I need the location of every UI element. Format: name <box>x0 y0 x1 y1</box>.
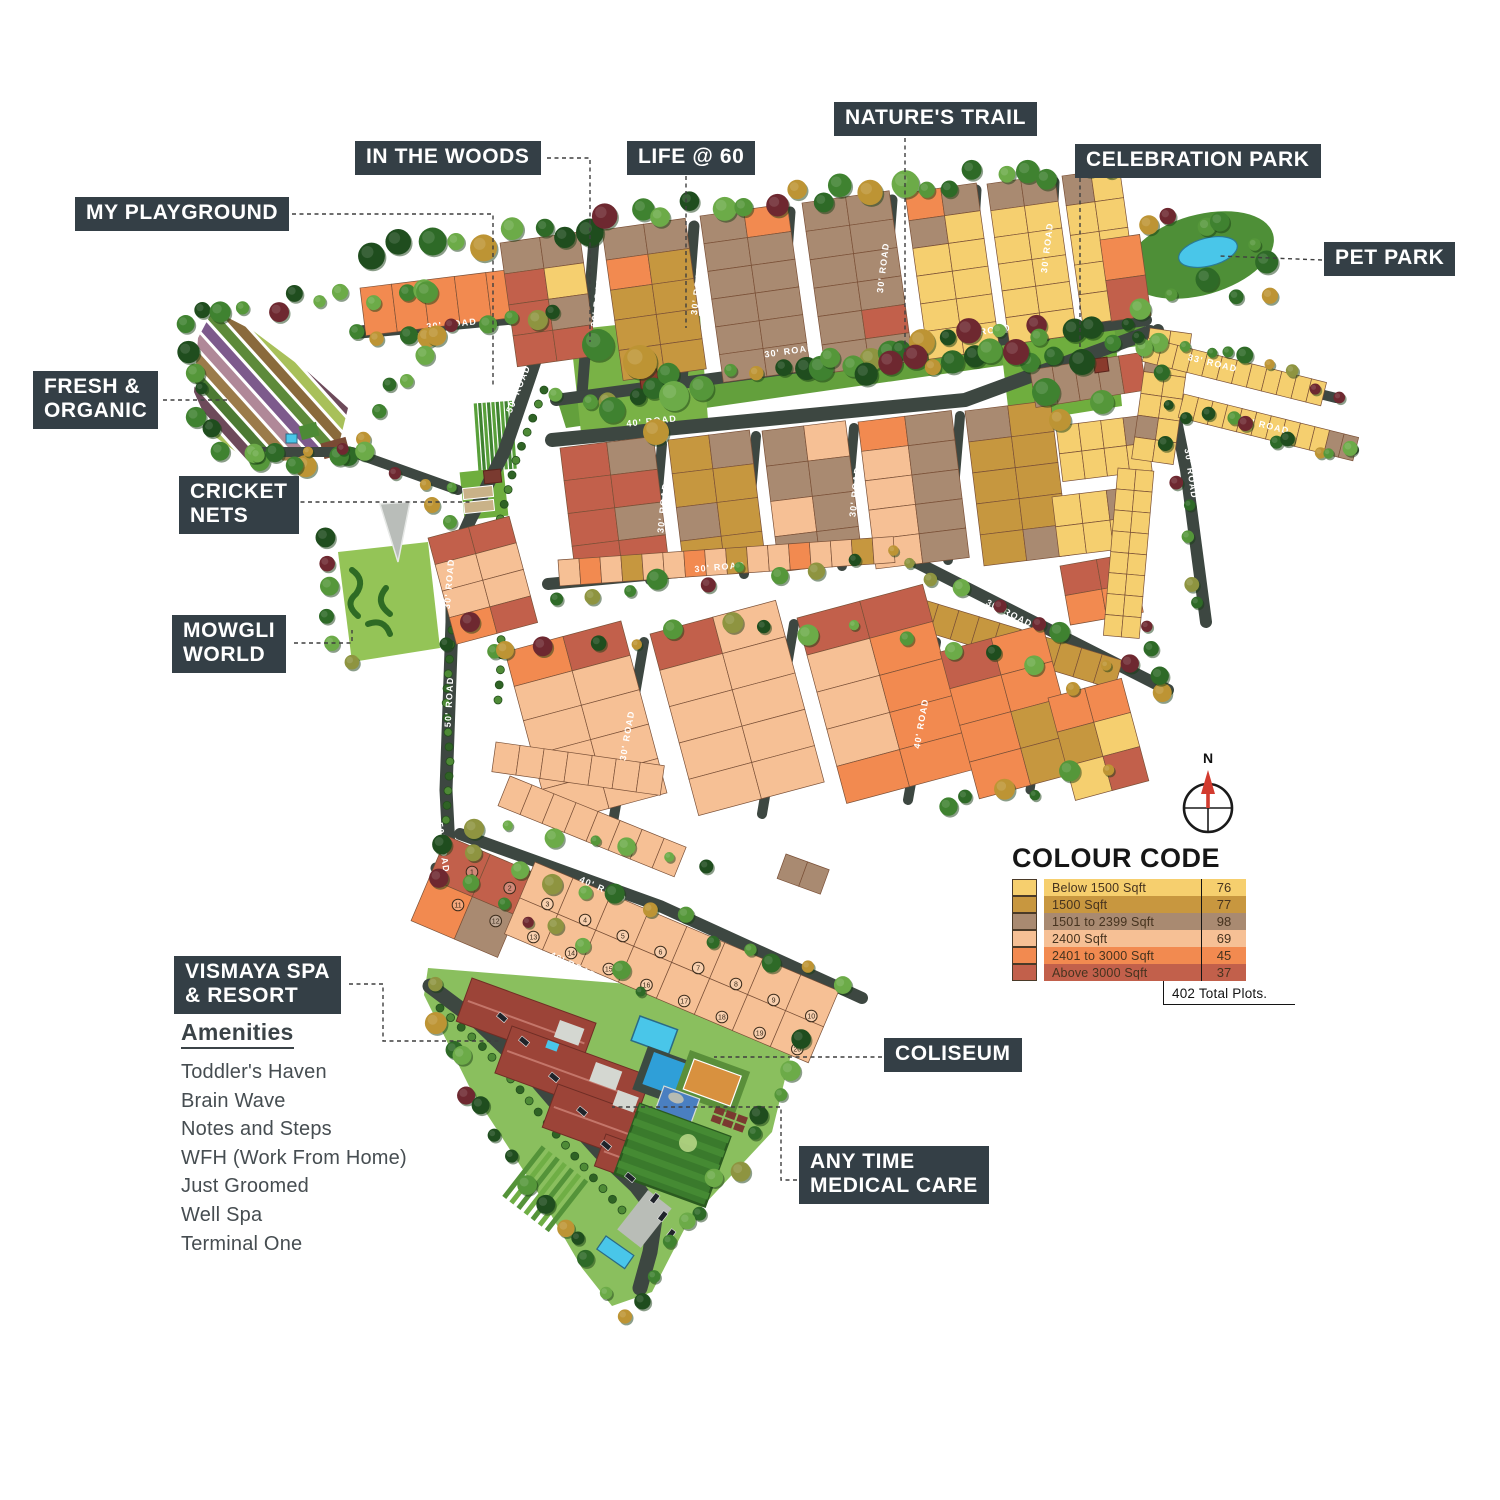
legend-row-count: 98 <box>1201 913 1246 930</box>
label-cricket-nets: CRICKET NETS <box>179 476 299 534</box>
legend-row-count: 45 <box>1201 947 1246 964</box>
svg-text:13: 13 <box>530 935 538 942</box>
legend-row: Above 3000 Sqft37 <box>1044 964 1246 981</box>
colour-code-legend: COLOUR CODE Below 1500 Sqft76 1500 Sqft7… <box>1012 843 1246 1005</box>
legend-title: COLOUR CODE <box>1012 843 1246 874</box>
legend-row-count: 69 <box>1201 930 1246 947</box>
legend-rows: Below 1500 Sqft76 1500 Sqft77 1501 to 23… <box>1044 879 1246 981</box>
legend-row-label: 1500 Sqft <box>1044 896 1201 913</box>
svg-text:5: 5 <box>621 934 625 941</box>
label-pet-park: PET PARK <box>1324 242 1455 276</box>
label-celebration-park: CELEBRATION PARK <box>1075 144 1321 178</box>
amenity-item: WFH (Work From Home) <box>181 1147 407 1171</box>
legend-row: 2400 Sqft69 <box>1044 930 1246 947</box>
svg-text:7: 7 <box>696 966 700 973</box>
legend-row-label: 2400 Sqft <box>1044 930 1201 947</box>
amenity-item: Well Spa <box>181 1204 407 1228</box>
amenities-list: Amenities Toddler's Haven Brain Wave Not… <box>181 1019 407 1261</box>
legend-swatch <box>1012 930 1037 947</box>
svg-text:6: 6 <box>659 950 663 957</box>
label-life-at-60: LIFE @ 60 <box>627 141 755 175</box>
legend-swatch <box>1012 964 1037 981</box>
svg-text:17: 17 <box>680 999 688 1006</box>
label-my-playground: MY PLAYGROUND <box>75 197 289 231</box>
compass-needle <box>1201 770 1215 794</box>
amenity-item: Notes and Steps <box>181 1118 407 1142</box>
svg-text:12: 12 <box>492 919 500 926</box>
svg-text:10: 10 <box>807 1014 815 1021</box>
svg-text:15: 15 <box>605 967 613 974</box>
plot-block <box>777 854 829 894</box>
legend-row: 2401 to 3000 Sqft45 <box>1044 947 1246 964</box>
legend-row-count: 76 <box>1201 879 1246 896</box>
legend-row-count: 77 <box>1201 896 1246 913</box>
legend-swatch <box>1012 947 1037 964</box>
amenities-heading: Amenities <box>181 1019 294 1049</box>
label-natures-trail: NATURE'S TRAIL <box>834 102 1037 136</box>
legend-row-count: 37 <box>1201 964 1246 981</box>
legend-row: Below 1500 Sqft76 <box>1044 879 1246 896</box>
legend-swatch <box>1012 879 1037 896</box>
legend-row-label: 2401 to 3000 Sqft <box>1044 947 1201 964</box>
legend-swatch <box>1012 896 1037 913</box>
masterplan-poster: 123456789101112131415161718192030' ROAD3… <box>0 0 1500 1500</box>
label-any-time-medical: ANY TIME MEDICAL CARE <box>799 1146 989 1204</box>
svg-text:4: 4 <box>583 918 587 925</box>
svg-text:3: 3 <box>545 902 549 909</box>
compass-north-letter: N <box>1203 750 1213 766</box>
legend-total-plots: 402 Total Plots. <box>1163 981 1295 1005</box>
svg-text:9: 9 <box>772 998 776 1005</box>
svg-text:18: 18 <box>718 1015 726 1022</box>
plot-block <box>1048 678 1149 800</box>
label-in-the-woods: IN THE WOODS <box>355 141 541 175</box>
amenity-item: Brain Wave <box>181 1090 407 1114</box>
label-fresh-organic: FRESH & ORGANIC <box>33 371 158 429</box>
legend-row-label: Above 3000 Sqft <box>1044 964 1201 981</box>
compass: N <box>1178 748 1238 842</box>
amenity-item: Just Groomed <box>181 1175 407 1199</box>
label-coliseum: COLISEUM <box>884 1038 1022 1072</box>
legend-row: 1500 Sqft77 <box>1044 896 1246 913</box>
legend-swatch-column <box>1012 879 1037 981</box>
legend-row-label: Below 1500 Sqft <box>1044 879 1201 896</box>
amenity-item: Toddler's Haven <box>181 1061 407 1085</box>
amenity-item: Terminal One <box>181 1233 407 1257</box>
leader-line <box>294 630 352 643</box>
legend-row: 1501 to 2399 Sqft98 <box>1044 913 1246 930</box>
svg-text:11: 11 <box>454 903 461 910</box>
svg-text:8: 8 <box>734 982 738 989</box>
svg-text:2: 2 <box>508 886 512 893</box>
legend-row-label: 1501 to 2399 Sqft <box>1044 913 1201 930</box>
label-vismaya-spa: VISMAYA SPA & RESORT <box>174 956 341 1014</box>
legend-swatch <box>1012 913 1037 930</box>
label-mowgli-world: MOWGLI WORLD <box>172 615 286 673</box>
svg-text:19: 19 <box>756 1031 764 1038</box>
